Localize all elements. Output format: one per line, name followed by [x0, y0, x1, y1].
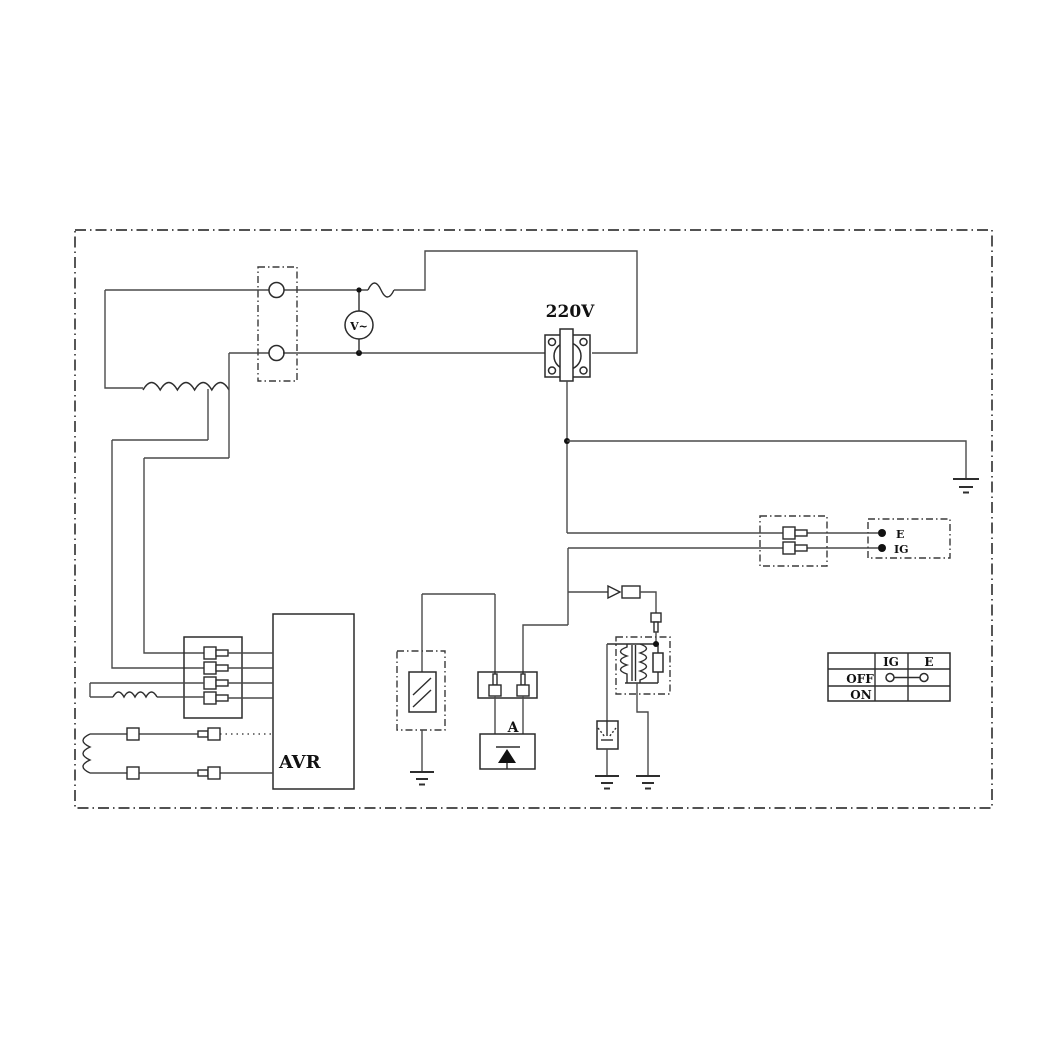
condenser-diode-unit: A	[397, 594, 537, 785]
avr-label: AVR	[278, 752, 322, 773]
wire	[523, 625, 568, 674]
bullet-terminal-pin	[654, 622, 658, 632]
terminal-square	[204, 662, 216, 674]
wire	[637, 683, 648, 776]
terminal-square	[204, 677, 216, 689]
terminal-square	[489, 685, 501, 696]
table-row-on: ON	[850, 688, 871, 702]
terminal-pin	[795, 530, 807, 536]
wire	[105, 290, 143, 388]
terminal-pin	[216, 680, 228, 686]
terminal-square	[517, 685, 529, 696]
fuse-symbol	[368, 283, 394, 297]
e-ig-harness: E IG	[567, 516, 950, 566]
diode-triangle-icon	[498, 749, 516, 763]
terminal-square	[783, 527, 795, 539]
screw-icon	[549, 367, 556, 374]
terminal-square	[127, 767, 139, 779]
primary-winding	[621, 644, 628, 683]
terminal-pin	[795, 545, 807, 551]
connector-pin-circle	[269, 346, 284, 361]
main-winding-coil	[143, 383, 229, 391]
screw-icon	[580, 367, 587, 374]
terminal-e-dot	[878, 529, 886, 537]
engine-switch-table: IG E OFF ON	[828, 653, 950, 702]
terminal-pin	[216, 650, 228, 656]
terminal-pin	[521, 674, 525, 685]
wire	[112, 440, 204, 668]
ignition-coil	[607, 637, 670, 789]
connector-outline	[258, 267, 297, 381]
wire	[567, 441, 966, 479]
harness-connector-outline	[760, 516, 827, 566]
terminal-square	[204, 647, 216, 659]
earth-run	[567, 441, 979, 493]
terminal-pin	[216, 695, 228, 701]
wire	[228, 653, 273, 698]
condenser-slashes	[413, 678, 431, 707]
terminal-pin	[493, 674, 497, 685]
wire	[144, 458, 204, 653]
ground-icon	[595, 776, 619, 789]
switch-contact-circle	[886, 674, 894, 682]
wire	[640, 592, 656, 613]
sense-winding-coil	[113, 692, 157, 697]
wiring-diagram: V~ 220V E IG	[0, 0, 1041, 1041]
terminal-pin	[198, 731, 208, 737]
field-winding-coil	[83, 734, 90, 773]
voltmeter-label: V~	[349, 320, 368, 333]
screw-icon	[549, 339, 556, 346]
rotor-field-winding	[83, 728, 273, 779]
condenser-outline	[397, 651, 445, 730]
secondary-winding	[640, 644, 647, 683]
terminal-ig-label: IG	[894, 543, 909, 556]
ground-icon	[636, 776, 660, 789]
outlet-voltage-label: 220V	[546, 302, 595, 322]
terminal-square	[204, 692, 216, 704]
terminal-pin	[198, 770, 208, 776]
wiring-diagram-canvas: V~ 220V E IG	[0, 0, 1041, 1041]
voltmeter: V~	[345, 292, 373, 353]
table-col-ig: IG	[883, 655, 899, 669]
coil-core	[632, 645, 636, 681]
receptacle-220v: 220V	[545, 302, 595, 533]
ground-icon	[410, 772, 434, 785]
terminal-ig-dot	[878, 544, 886, 552]
junction-dot	[653, 641, 659, 647]
junction-dot	[356, 287, 361, 292]
avr-unit: AVR	[90, 614, 354, 789]
ignition-feed	[523, 548, 661, 674]
terminal-e-label: E	[896, 528, 904, 541]
connector-pin-circle	[269, 283, 284, 298]
terminal-pin	[216, 665, 228, 671]
connector-terminals	[204, 647, 228, 704]
diode-icon	[608, 586, 620, 598]
resistor-box	[622, 586, 640, 598]
output-connector	[258, 267, 297, 381]
bullet-terminal	[651, 613, 661, 622]
ground-icon	[953, 479, 979, 493]
table-col-e: E	[924, 655, 933, 669]
table-row-off: OFF	[846, 672, 874, 686]
outlet-slot	[560, 329, 573, 381]
terminal-square	[127, 728, 139, 740]
terminal-square	[208, 728, 220, 740]
switch-contact-circle	[920, 674, 928, 682]
terminal-square	[783, 542, 795, 554]
diagram-frame	[75, 230, 992, 808]
wire	[394, 251, 637, 353]
screw-icon	[580, 339, 587, 346]
terminal-square	[208, 767, 220, 779]
coil-resistor	[653, 653, 663, 672]
switch-terminals-outline	[868, 519, 950, 558]
